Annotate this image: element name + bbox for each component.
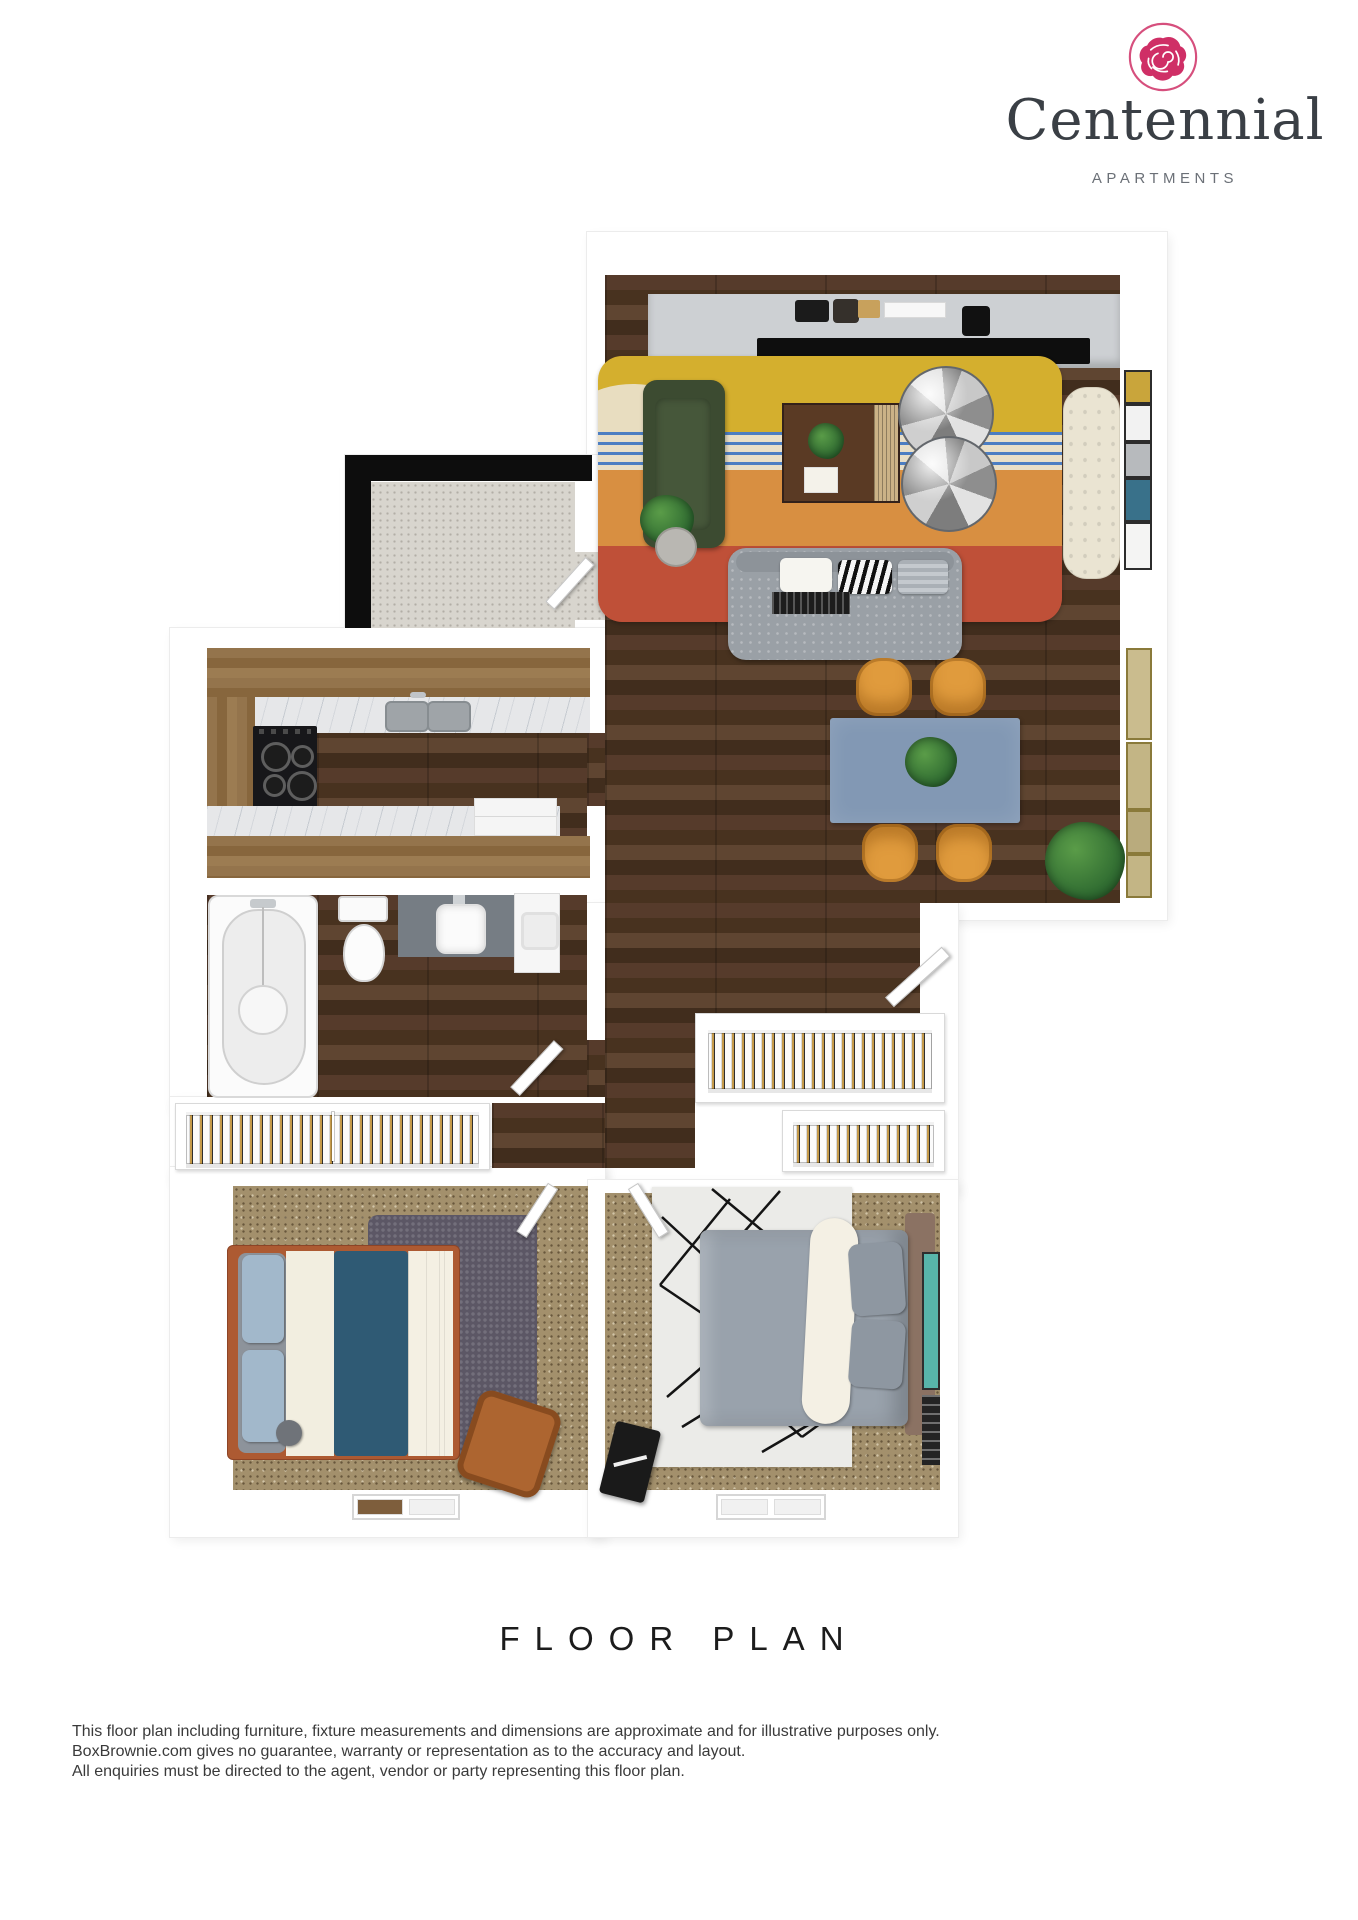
- wall-frame: [1128, 812, 1150, 852]
- disclaimer-text: This floor plan including furniture, fix…: [72, 1722, 1122, 1782]
- wall-frame: [1128, 744, 1150, 808]
- floor-lamp: [276, 1420, 302, 1446]
- balcony-floor: [370, 482, 575, 628]
- console-keyboard: [884, 302, 946, 318]
- pouf-chair-2: [901, 436, 997, 532]
- wall-frame: [1126, 372, 1150, 402]
- bedroom1-bed: [227, 1245, 460, 1460]
- bed1-blanket: [334, 1251, 408, 1456]
- speaker: [962, 306, 990, 336]
- washer: [514, 893, 560, 973]
- disclaimer-line-3: All enquiries must be directed to the ag…: [72, 1762, 1122, 1782]
- dining-plant: [905, 737, 957, 787]
- console-basket: [858, 300, 880, 318]
- balcony-rail-left: [345, 455, 371, 628]
- kitchen-counter-bottom: [207, 836, 590, 878]
- toilet-bowl: [343, 924, 385, 982]
- leaning-mirror: [922, 1252, 940, 1390]
- dining-chair: [930, 658, 986, 716]
- wall-frame: [1128, 856, 1150, 896]
- kitchen-doorway: [587, 733, 605, 806]
- sofa: [728, 548, 962, 660]
- page-title: FLOOR PLAN: [0, 1620, 1358, 1658]
- hallway-floor: [605, 903, 695, 1168]
- sink-basin: [436, 904, 486, 954]
- sofa-pillow-zebra: [838, 560, 892, 594]
- bed2-pillow: [848, 1241, 907, 1317]
- closet-hall-left: [175, 1103, 490, 1170]
- sofa-pillow-stripe: [898, 560, 948, 594]
- wall-rack: [922, 1395, 940, 1465]
- bedroom1-window: [352, 1494, 460, 1520]
- kitchen-sink-bowl: [385, 701, 429, 732]
- bed1-pillow: [242, 1255, 284, 1343]
- stove: [253, 726, 317, 808]
- hallway-floor-branch: [492, 1103, 605, 1168]
- bathtub: [208, 895, 318, 1098]
- bedroom2-window: [716, 1494, 826, 1520]
- table-plant: [808, 423, 844, 459]
- dining-chair: [856, 658, 912, 716]
- chaise-bench: [1063, 387, 1120, 579]
- bathroom-doorway: [587, 1040, 605, 1097]
- floor-plan-image: [0, 0, 1358, 1560]
- vanity: [398, 895, 516, 957]
- dining-chair: [936, 824, 992, 882]
- coffee-table: [782, 403, 900, 503]
- sofa-pillow-white: [780, 558, 832, 592]
- kitchen-counter-top: [207, 648, 590, 697]
- wall-frame: [1126, 480, 1150, 520]
- dining-chair: [862, 824, 918, 882]
- floor-plant: [1045, 822, 1125, 900]
- console-box: [833, 299, 859, 323]
- wall-frame: [1128, 650, 1150, 738]
- disclaimer-line-1: This floor plan including furniture, fix…: [72, 1722, 1122, 1742]
- disclaimer-line-2: BoxBrownie.com gives no guarantee, warra…: [72, 1742, 1122, 1762]
- plant-pot: [655, 527, 697, 567]
- bed1-throw: [408, 1251, 453, 1456]
- toilet: [338, 896, 388, 922]
- table-book: [804, 467, 838, 493]
- kitchen-sink-bowl: [427, 701, 471, 732]
- fridge: [474, 798, 557, 836]
- wall-frame: [1126, 524, 1150, 568]
- shower-head: [238, 985, 288, 1035]
- wall-frame: [1126, 444, 1150, 476]
- closet-hall-right: [695, 1013, 945, 1103]
- balcony-rail-top: [345, 455, 592, 481]
- wall-frame: [1126, 406, 1150, 440]
- kitchen-faucet: [410, 692, 426, 698]
- game-console: [795, 300, 829, 322]
- bed2-pillow: [848, 1318, 907, 1390]
- sofa-bench-tray: [772, 592, 850, 614]
- closet-bedroom2: [782, 1110, 945, 1172]
